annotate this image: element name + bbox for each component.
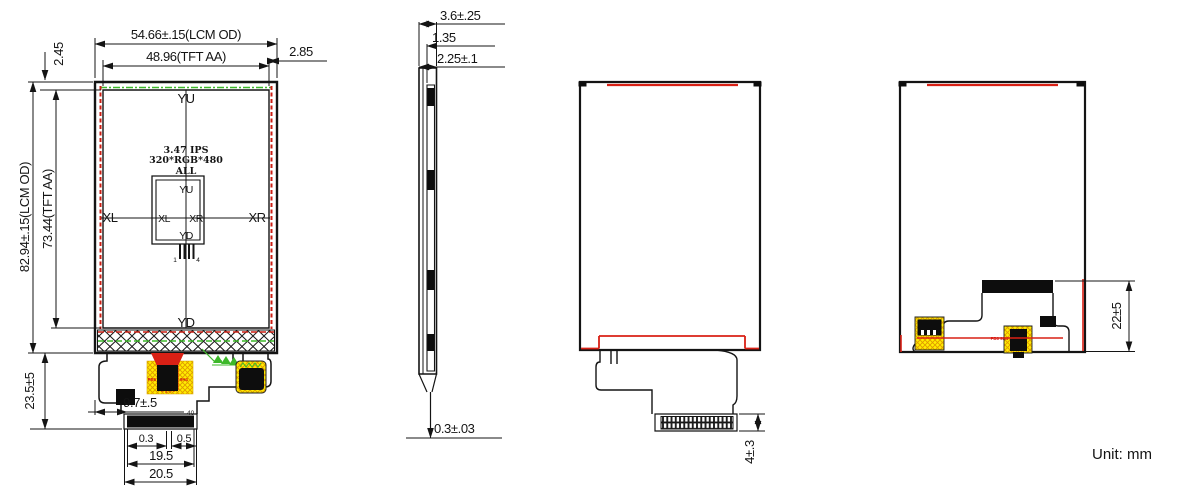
tail-contact-bar: [127, 416, 194, 428]
bottom-seal-lines: [581, 336, 759, 349]
dim-fpc-offset: 9.7±.5: [123, 395, 157, 410]
corner-mark-right2: [1077, 82, 1085, 87]
dim-right-margin: 2.85: [289, 44, 313, 59]
inner-label-yu: YU: [179, 184, 193, 196]
dim-contact-right: 0.5: [177, 433, 192, 445]
dim-aa-height: 73.44(TFT AA): [40, 169, 55, 249]
driver-ic: [157, 365, 178, 391]
front-view: YU XL XR YD 3.47 IPS 320*RGB*480 ALL YU …: [17, 27, 327, 485]
dim-lcm-height: 82.94±.15(LCM OD): [17, 162, 32, 272]
pin-4-label: 4: [196, 257, 200, 264]
label-resolution: 320*RGB*480: [149, 155, 223, 166]
side-inner-layer: [427, 85, 435, 371]
dim-lcm-width: 54.66±.15(LCM OD): [131, 27, 241, 42]
corner-mark-right: [754, 82, 762, 87]
fpc-bend: [419, 374, 437, 392]
drawing-canvas: YU XL XR YD 3.47 IPS 320*RGB*480 ALL YU …: [0, 0, 1200, 498]
connector-body: [239, 368, 264, 390]
component-chip-back: [1040, 316, 1056, 327]
ic-tab-back: [1013, 352, 1024, 358]
driver-ic-back: [1010, 329, 1027, 351]
dim-aa-width: 48.96(TFT AA): [146, 49, 226, 64]
label-touch-down: YD: [177, 315, 194, 330]
label-touch-left: XL: [103, 210, 118, 225]
unit-note: Unit: mm: [1092, 446, 1152, 463]
dim-fpc-length: 23.5±5: [22, 372, 37, 409]
dim-fpc-thickness: 0.3±.03: [434, 421, 475, 436]
label-touch-right: XR: [248, 210, 265, 225]
inner-label-xl: XL: [158, 213, 171, 225]
adhesive-segments: [428, 88, 435, 351]
folded-stiffener-bar: [982, 280, 1053, 293]
tail-pin-grid: [661, 417, 733, 430]
lcm-outline-back2: [900, 82, 1085, 352]
inner-label-xr: XR: [189, 213, 204, 225]
side-profile-outline: [419, 68, 437, 374]
pin-1-label: 1: [173, 257, 177, 264]
dim-tail-width: 20.5: [149, 466, 173, 481]
side-view: 3.6±.25 1.35 2.25±.1 0.3±.03: [406, 8, 505, 438]
back2-dimensions: 22±5: [1055, 281, 1135, 352]
dim-lcm-thickness: 2.25±.1: [437, 51, 478, 66]
dim-fold-height: 22±5: [1109, 302, 1124, 329]
back-view-unfolded: 4±.3: [579, 82, 766, 464]
pin-40-label: 40: [187, 410, 195, 417]
bottom-hatch-band: [98, 330, 275, 351]
dim-tp-thickness: 1.35: [432, 30, 456, 45]
dim-contact-width: 19.5: [149, 448, 173, 463]
lcd-module-mechanical-drawing: { "unit_label": "Unit: mm", "views": { "…: [0, 0, 1200, 498]
lcm-outline-back1: [580, 82, 760, 350]
dim-connector-length: 4±.3: [742, 440, 757, 464]
touch-pin-diagram: YU XL XR YD 1 4: [152, 176, 204, 264]
back1-dimensions: 4±.3: [739, 414, 765, 464]
inner-label-yd: YD: [179, 230, 194, 242]
corner-mark-left2: [899, 82, 907, 87]
dim-contact-left: 0.3: [139, 433, 154, 445]
fpc-unfolded-outline: [596, 350, 737, 431]
dim-total-thickness: 3.6±.25: [440, 8, 481, 23]
dim-top-margin: 2.45: [51, 42, 66, 66]
label-touch-up: YU: [177, 91, 194, 106]
corner-mark-left: [579, 82, 587, 87]
ic-marking-left: PB6: [148, 377, 157, 382]
ic-marking-right: 9H4: [180, 377, 188, 382]
back-view-folded: PB6 9H4 22±5: [899, 82, 1136, 359]
